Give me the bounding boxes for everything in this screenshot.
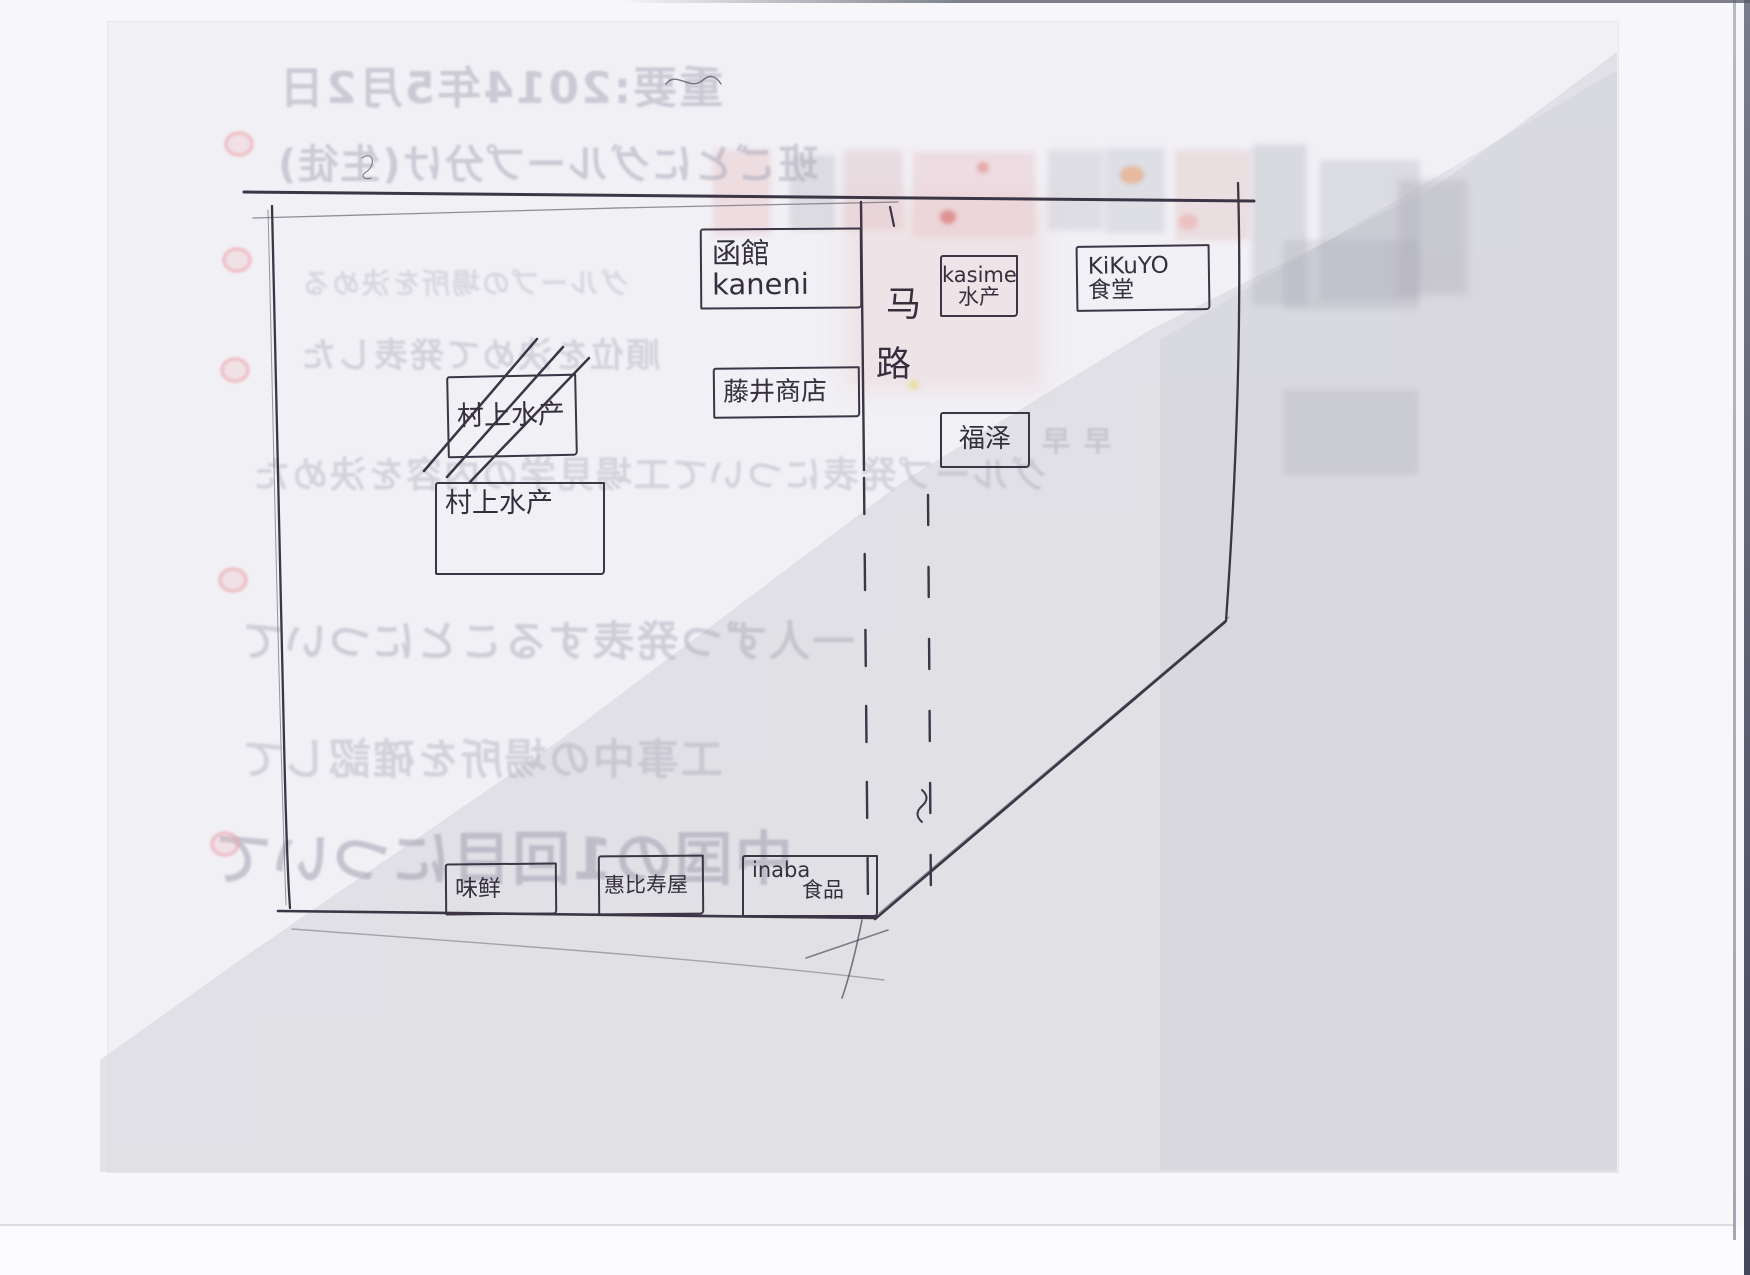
building-label: 村上水产 [445,490,603,518]
road-right-line-dashed [928,495,931,905]
map-border-top [244,192,1254,201]
pen-squiggle-mark [666,77,721,84]
building-label: kasime [942,264,1016,286]
road-continuation-stroke [842,920,862,998]
map-border-right [1226,183,1239,621]
building-kikuyo-shokudo: KiKuYO 食堂 [1076,244,1211,312]
building-weixian: 味鲜 [445,863,557,916]
building-hakodate-kaneni: 函館kaneni [700,227,863,309]
building-label: 惠比寿屋 [604,874,702,897]
road-label-char: 马 [886,276,921,327]
road-left-line-dashed [864,478,868,905]
building-label: 水产 [942,286,1016,308]
building-kasime-suisan: kasime 水产 [940,255,1018,317]
building-label: 函館kaneni [712,238,860,300]
building-label: 村上水产 [457,401,576,432]
building-murakami-suisan: 村上水产 [435,482,605,575]
building-label: KiKuYO [1088,253,1208,279]
map-linework [0,0,1750,1275]
map-border-bottom-curve [292,929,884,980]
sheet-right-edge [1733,0,1736,1240]
map-border-diagonal [875,622,1225,919]
map-border-left-echo [268,210,286,905]
road-label-char: 路 [876,336,911,387]
scan-right-edge [1744,0,1750,1275]
building-inaba-shokuhin: inaba 食品 [742,855,878,917]
building-label: 食堂 [1088,277,1208,303]
scan-bottom-margin [0,1227,1744,1275]
pen-squiggle-mark [362,156,372,179]
building-fukuzawa: 福泽 [940,412,1030,468]
road-squiggle-mark [918,790,927,822]
scanned-hand-drawn-map-page: 重要:2014年5月2日 班ごとにグループ分け(生徒) グループの場所を決める … [0,0,1750,1275]
building-label: 味鲜 [455,876,555,901]
map-border-top-echo [253,202,898,218]
building-murakami-suisan-crossed-out: 村上水产 [446,374,578,459]
map-border-left [272,206,290,908]
building-fujii-shoten: 藤井商店 [713,366,861,419]
building-label: 福泽 [942,426,1028,453]
building-label: 藤井商店 [723,378,858,407]
road-right-line-tick [890,207,894,226]
scan-top-edge [620,0,1750,3]
building-label: 食品 [802,879,876,901]
building-ebisuya: 惠比寿屋 [598,855,704,916]
sheet-bottom-edge [0,1224,1733,1226]
road-continuation-stroke [806,930,888,958]
